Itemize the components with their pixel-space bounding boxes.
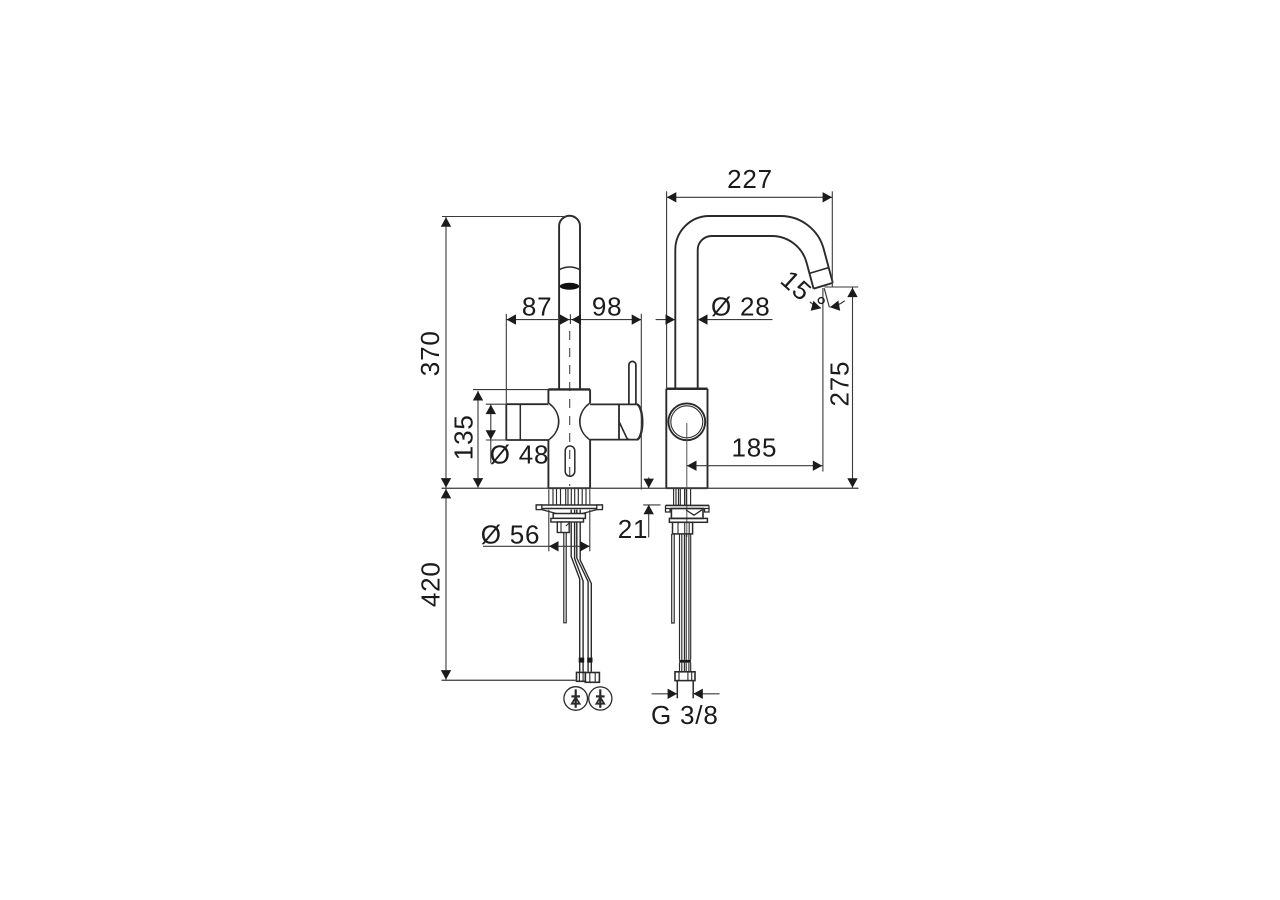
svg-text:21: 21: [618, 514, 649, 544]
svg-text:98: 98: [592, 292, 623, 322]
svg-text:227: 227: [727, 164, 773, 194]
svg-text:Ø 56: Ø 56: [481, 520, 541, 550]
svg-text:185: 185: [732, 433, 778, 463]
svg-text:Ø 28: Ø 28: [711, 292, 771, 322]
svg-text:370: 370: [415, 330, 445, 376]
svg-text:G 3/8: G 3/8: [651, 700, 719, 730]
svg-text:420: 420: [416, 561, 446, 607]
svg-text:87: 87: [522, 292, 553, 322]
svg-text:Ø 48: Ø 48: [490, 440, 550, 470]
svg-text:135: 135: [449, 414, 479, 460]
svg-text:275: 275: [825, 361, 855, 407]
